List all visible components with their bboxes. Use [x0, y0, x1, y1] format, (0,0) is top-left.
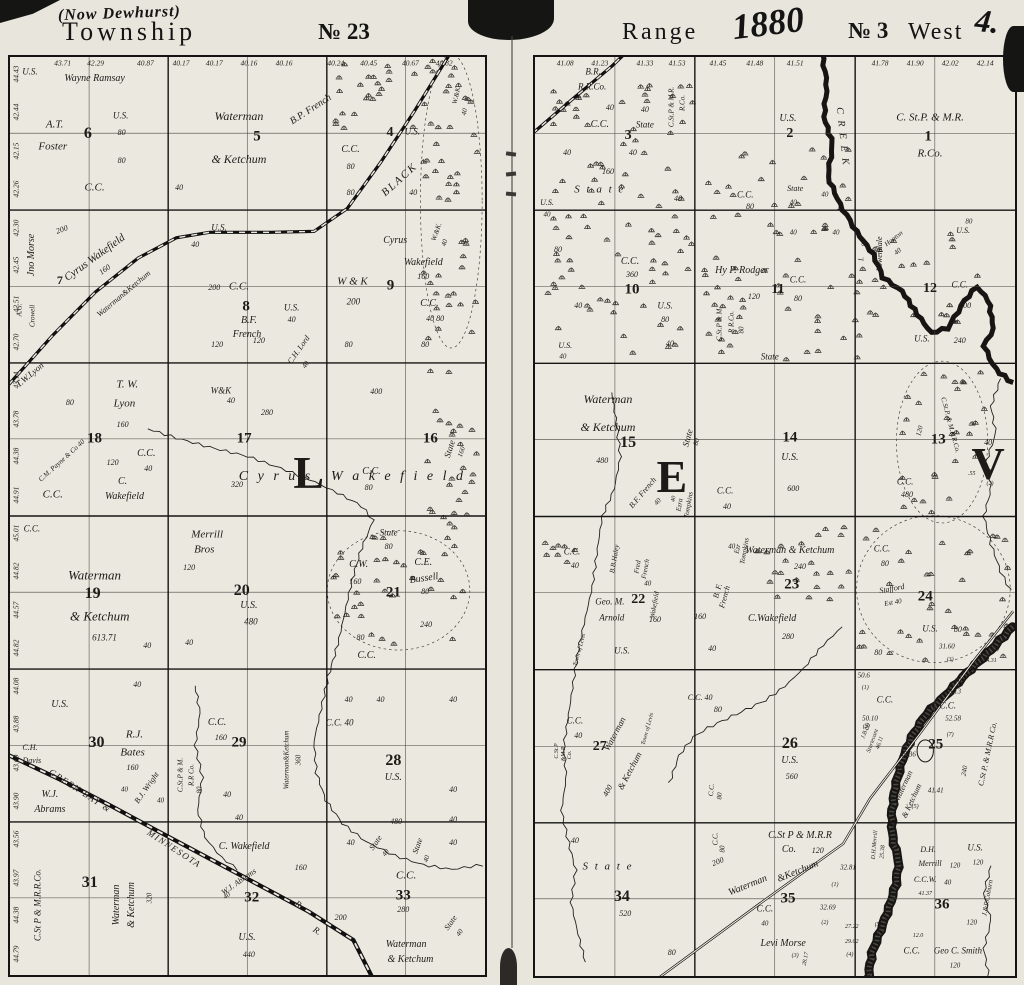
- map-label: 120: [748, 293, 760, 301]
- map-label: U.S.: [922, 624, 938, 633]
- map-label: Foster: [38, 141, 67, 152]
- map-label: C.C.: [229, 282, 249, 293]
- edge-acreage-left: 43.69: [12, 755, 20, 772]
- map-label: Hy P. Rodger: [715, 266, 768, 276]
- map-label: C.St P. & M.R.R Co.: [977, 721, 998, 787]
- map-label: B.F.: [241, 316, 257, 326]
- map-label: Town of Levis: [641, 712, 655, 746]
- map-label: C.C.: [877, 696, 894, 705]
- map-label: Hooton: [884, 230, 905, 248]
- map-label: 440: [243, 951, 255, 959]
- map-label: 50.10: [862, 715, 878, 722]
- map-label: & Ketchum: [388, 955, 434, 965]
- map-label: 120: [950, 962, 961, 969]
- edge-acreage-left: 42.70: [12, 334, 20, 351]
- map-label: 14.31: [983, 658, 997, 664]
- map-label: C.Wakefield: [748, 614, 796, 624]
- map-label: & Ketchum: [616, 751, 643, 792]
- map-label: 160: [215, 734, 227, 742]
- map-label: U.S.: [51, 700, 68, 710]
- gutter-mark: [506, 192, 516, 197]
- map-label: &M.R: [561, 746, 567, 761]
- map-label: Town of Levis: [573, 633, 587, 667]
- edge-acreage-top: 42.29: [87, 60, 104, 68]
- handwritten-year: 1880: [730, 0, 807, 48]
- map-label: 40: [235, 814, 243, 822]
- edge-acreage-top: 41.45: [709, 60, 726, 68]
- edge-acreage-top: 41.78: [872, 60, 889, 68]
- map-label: A.T.: [46, 119, 64, 130]
- map-label: 200: [711, 856, 725, 868]
- map-label: J.&P.Coburn: [981, 879, 994, 916]
- map-label: 29.02: [845, 939, 859, 945]
- map-label: 80: [66, 399, 74, 407]
- map-label: 25: [928, 738, 943, 753]
- map-label: 40: [345, 696, 353, 704]
- map-label: 10: [624, 283, 639, 298]
- map-label: U.S.: [967, 844, 983, 853]
- map-label: 40: [143, 642, 151, 650]
- map-label: (1): [832, 882, 839, 888]
- map-label: C.St.P: [554, 743, 560, 758]
- map-label: 5: [253, 129, 261, 144]
- map-label: U.S.: [238, 933, 255, 943]
- map-label: 12: [923, 282, 937, 296]
- map-label: C.C. 40: [326, 719, 354, 728]
- map-label: 80: [365, 484, 373, 492]
- map-label: C.E.: [414, 558, 432, 568]
- map-label: 80: [794, 295, 802, 303]
- map-label: 32.69: [820, 904, 836, 911]
- edge-acreage-top: 41.48: [746, 60, 763, 68]
- map-label: 32.81: [840, 865, 856, 872]
- map-label: C.C.: [564, 548, 581, 557]
- map-label: 40: [227, 397, 235, 405]
- township-label: Township: [62, 17, 196, 47]
- map-label: Cyrus: [383, 236, 407, 246]
- map-label: 40: [644, 580, 651, 587]
- map-label: Waterman: [214, 110, 263, 122]
- map-label: 120: [183, 564, 195, 572]
- map-label: 80: [357, 634, 365, 642]
- map-label: 120: [253, 337, 265, 345]
- map-label: 36: [935, 898, 950, 913]
- edge-acreage-top: 40.16: [240, 60, 257, 68]
- edge-acreage-top: 41.53: [669, 60, 686, 68]
- map-label: 31.60: [939, 643, 955, 650]
- edge-acreage-top: 42.14: [977, 60, 994, 68]
- map-label: &Ketchum: [776, 859, 820, 885]
- map-label: 40: [723, 503, 731, 511]
- map-label: 120: [812, 847, 824, 855]
- edge-acreage-top: 41.08: [557, 60, 574, 68]
- map-label: (5): [912, 804, 919, 810]
- map-label: C.C.: [341, 145, 359, 155]
- binding-blob-top: [468, 0, 554, 40]
- map-label: 40: [449, 839, 457, 847]
- map-label: 80: [385, 543, 393, 551]
- map-label: State: [412, 837, 425, 855]
- map-label: W.&K.: [452, 85, 463, 105]
- map-label: 20: [234, 583, 250, 599]
- map-label: C. St.P. & M.R.: [896, 112, 964, 123]
- plat-page-left: U.S.Wayne RamsayA.T.Foster6U.S.8080C.C.4…: [8, 55, 487, 977]
- edge-acreage-left: 43.97: [12, 869, 20, 886]
- map-label: 40: [574, 732, 582, 740]
- map-label: 80: [720, 846, 727, 853]
- map-label: 40: [571, 837, 579, 845]
- map-label: L: [293, 450, 324, 496]
- township-number: № 23: [318, 19, 370, 45]
- edge-acreage-top: 43.71: [54, 60, 71, 68]
- map-label: 80: [345, 341, 353, 349]
- edge-acreage-top: 40.87: [137, 60, 154, 68]
- map-label: Bates: [120, 747, 144, 758]
- map-label: 40: [461, 108, 469, 116]
- map-label: (4): [846, 952, 853, 958]
- map-label: 40: [821, 191, 828, 198]
- map-label: 3: [625, 129, 632, 143]
- map-label: 15: [620, 435, 636, 451]
- map-label: 14: [782, 431, 797, 446]
- map-label: Wakefield: [105, 492, 144, 502]
- map-label: C.C.: [567, 717, 584, 726]
- edge-acreage-left: 43.88: [12, 716, 20, 733]
- map-label: 40: [449, 816, 457, 824]
- map-label: Waterman: [68, 568, 121, 581]
- map-label: T. W.: [116, 379, 138, 390]
- map-label: Waterman: [727, 874, 769, 899]
- map-label: 40: [790, 200, 797, 207]
- map-label: 2: [786, 127, 793, 141]
- edge-acreage-left: 45.01: [12, 525, 20, 542]
- map-label: C.C. 40: [688, 694, 713, 702]
- map-label: 26: [782, 736, 798, 752]
- edge-acreage-top: 41.33: [636, 60, 653, 68]
- map-label: 40: [559, 353, 566, 360]
- map-label: 80: [746, 203, 754, 211]
- map-label: & Ketchum: [580, 421, 635, 433]
- map-label: 80: [693, 438, 702, 447]
- map-label: U.S.: [405, 128, 421, 137]
- map-label: B.R.: [585, 67, 601, 76]
- west-label: West: [908, 19, 963, 46]
- map-label: Levi Morse: [761, 939, 806, 949]
- map-label: C.St.P & M.: [716, 307, 723, 341]
- map-label: 40: [175, 184, 183, 192]
- map-label: Lyon: [114, 399, 136, 410]
- edge-acreage-top: 41.90: [907, 60, 924, 68]
- edge-acreage-top: 40.17: [206, 60, 223, 68]
- edge-acreage-left: 44.82: [12, 640, 20, 657]
- map-label: C.C.: [717, 486, 734, 495]
- edge-acreage-top: 40.45: [360, 60, 377, 68]
- map-label: 120: [950, 862, 961, 869]
- map-label: Waterman: [584, 393, 633, 405]
- edge-acreage-left: 42.30: [12, 219, 20, 236]
- map-label: 40: [185, 639, 193, 647]
- map-label: U.S.: [914, 335, 930, 344]
- edge-acreage-left: 44.38: [12, 907, 20, 924]
- map-label: Waterman: [386, 940, 427, 950]
- map-label: & Ketchum: [70, 610, 130, 623]
- map-label: C.C.: [396, 870, 416, 881]
- edge-acreage-left: 44.79: [12, 945, 20, 962]
- map-label: 80: [347, 163, 355, 171]
- map-label: 41.37: [918, 891, 932, 897]
- map-label: S t a t e: [582, 861, 633, 872]
- map-label: 280: [397, 906, 409, 914]
- map-label: 9: [387, 278, 395, 293]
- map-label: 40: [347, 839, 355, 847]
- edge-acreage-left: 42.45: [12, 257, 20, 274]
- map-label: U.S.: [113, 111, 129, 120]
- map-label: 160: [295, 864, 307, 872]
- map-label: U.S.: [657, 302, 673, 311]
- map-label: (1): [862, 685, 869, 691]
- map-label: Wakefield: [404, 258, 443, 268]
- map-label: 21: [386, 586, 401, 601]
- map-label: 40: [674, 195, 682, 203]
- map-label: C.St P & M.R.R: [768, 831, 832, 841]
- map-label: 40: [449, 786, 457, 794]
- map-label: 32: [244, 890, 259, 905]
- map-label: 160: [97, 263, 111, 277]
- map-label: 80: [118, 129, 126, 137]
- map-label: Waterman & Ketchum: [745, 546, 834, 556]
- map-label: 480: [390, 818, 402, 826]
- map-label: 13: [931, 433, 946, 448]
- map-label: 40: [574, 302, 582, 310]
- gutter-mark: [506, 151, 516, 156]
- map-label: C.C.: [84, 183, 104, 194]
- map-label: C.C.: [137, 449, 155, 459]
- map-label: C.H. Lord: [286, 334, 311, 365]
- map-label: Tompkins: [683, 491, 695, 518]
- map-label: C.C.: [24, 524, 41, 533]
- map-label: 80: [347, 189, 355, 197]
- map-label: 17: [237, 431, 252, 446]
- map-label: (5): [875, 922, 882, 928]
- map-label: 120: [915, 425, 924, 437]
- map-label: 33: [396, 889, 411, 904]
- plat-page-right: B.R.R.R.Co.C.C.State340404040160S t a t …: [533, 55, 1017, 978]
- map-label: D.H.: [920, 846, 936, 854]
- map-label: 40: [629, 149, 637, 157]
- map-label: State: [443, 439, 457, 459]
- edge-acreage-left: 43.90: [12, 792, 20, 809]
- map-label: 28: [385, 753, 401, 769]
- edge-acreage-left: 42.44: [12, 104, 20, 121]
- map-label: 200: [959, 302, 971, 310]
- map-label: E: [656, 454, 687, 500]
- map-label: 40: [563, 149, 571, 157]
- edge-acreage-left: 42.26: [12, 181, 20, 198]
- map-label: 120: [973, 859, 984, 866]
- map-label: 24: [918, 590, 933, 605]
- map-label: 40: [191, 241, 199, 249]
- page-edge-blob: [1003, 26, 1024, 92]
- map-label: 80: [421, 588, 429, 596]
- map-label: 120: [967, 919, 978, 926]
- map-label: 40: [455, 928, 465, 938]
- map-label: (2): [821, 920, 828, 926]
- map-label: C R E E K: [834, 107, 850, 167]
- map-label: 23: [784, 577, 799, 592]
- map-label: 360: [295, 755, 302, 766]
- edge-acreage-top: 40.17: [173, 60, 190, 68]
- map-label: Jno Morse: [27, 234, 37, 277]
- map-label: 40: [761, 920, 768, 927]
- edge-acreage-left: 42.51: [12, 296, 20, 313]
- map-label: 40: [157, 797, 164, 804]
- handwritten-west-number: 4.: [973, 2, 1001, 41]
- map-label: 40: [288, 316, 296, 324]
- edge-acreage-top: 40.24: [327, 60, 344, 68]
- map-label: & Ketchum: [211, 153, 266, 165]
- map-label: B.F. French: [628, 476, 658, 510]
- map-label: S t a t e: [574, 185, 625, 196]
- map-label: 40: [571, 562, 579, 570]
- map-label: 40: [377, 696, 385, 704]
- map-label: Arnold: [599, 613, 624, 622]
- map-label: R R.Co.: [728, 311, 735, 333]
- map-label: 160: [127, 764, 139, 772]
- edge-acreage-left: 44.38: [12, 448, 20, 465]
- map-label: Co.: [782, 845, 796, 855]
- map-label: W.J.: [41, 790, 58, 800]
- map-label: Est 40: [884, 598, 903, 608]
- map-label: 80: [197, 786, 204, 793]
- map-label: Waterman&Ketchum: [96, 269, 153, 318]
- map-label: 400: [602, 784, 615, 798]
- map-label: 320: [146, 893, 153, 904]
- map-label: Geo C. Smith: [934, 947, 982, 956]
- edge-acreage-top: 40.16: [276, 60, 293, 68]
- edge-acreage-left: 44.43: [12, 66, 20, 83]
- map-label: C.C.: [362, 467, 380, 477]
- edge-acreage-left: 44.82: [12, 563, 20, 580]
- map-label: 240: [954, 337, 966, 345]
- edge-acreage-left: 44.57: [12, 601, 20, 618]
- map-label: 8: [242, 299, 250, 314]
- map-label: 400: [370, 388, 382, 396]
- map-label: C.C.: [757, 904, 774, 913]
- map-label: 320: [231, 481, 243, 489]
- map-label: W a k e f i e l d: [331, 470, 466, 484]
- map-label: 40: [423, 855, 432, 864]
- edge-acreage-top: 40.82: [436, 60, 453, 68]
- map-label: State: [380, 529, 398, 538]
- map-label: 160: [602, 168, 614, 176]
- map-label: 40: [893, 247, 903, 257]
- map-label: Bros: [194, 544, 214, 555]
- map-label: 40: [606, 104, 614, 112]
- range-number: № 3: [848, 18, 888, 44]
- map-label: W & K: [337, 276, 368, 287]
- map-label: 480: [901, 491, 913, 499]
- map-label: (3): [947, 657, 954, 663]
- map-label: 4: [387, 126, 394, 140]
- map-label: 30: [88, 735, 104, 751]
- map-label: 34: [614, 889, 630, 905]
- map-label: R.J.: [126, 730, 143, 741]
- edge-acreage-left: 43.56: [12, 831, 20, 848]
- map-label: U.S.: [284, 303, 300, 312]
- map-label: 40: [544, 212, 551, 219]
- map-label: U.S.: [781, 756, 798, 766]
- edge-acreage-left: 43.78: [12, 410, 20, 427]
- map-label: 200: [335, 914, 347, 922]
- map-label: 120: [211, 341, 223, 349]
- map-label: (7): [947, 732, 954, 738]
- map-label: 80: [714, 706, 722, 714]
- map-label: 40: [666, 340, 674, 348]
- map-label: 12.0: [913, 933, 924, 939]
- map-labels-right: B.R.R.R.Co.C.C.State340404040160S t a t …: [535, 57, 1015, 976]
- map-label: 18: [87, 431, 102, 446]
- map-label: R.Co.: [918, 149, 943, 160]
- map-label: 200: [347, 298, 361, 307]
- map-label: C. Wakefield: [219, 842, 270, 852]
- map-label: U.S.: [22, 67, 38, 76]
- map-label: 6: [84, 126, 92, 142]
- edge-acreage-left: 44.91: [12, 486, 20, 503]
- map-label: 40: [409, 189, 417, 197]
- map-label: Crowell: [29, 305, 36, 327]
- map-label: (8): [954, 678, 961, 684]
- map-label: 22: [631, 593, 645, 607]
- map-label: 80: [554, 246, 562, 254]
- map-label: U.S.: [956, 227, 970, 235]
- plat-map-scan: (Now Dewhurst) Township № 23 Range 1880 …: [0, 0, 1024, 985]
- map-label: State: [761, 352, 779, 361]
- map-label: U.S.: [558, 342, 572, 350]
- map-label: C.C.: [208, 718, 226, 728]
- edge-acreage-left: 43.14: [12, 372, 20, 389]
- map-label: & Ketchum: [127, 882, 137, 928]
- map-label: 40 80: [426, 315, 444, 323]
- map-label: 19: [85, 586, 101, 602]
- map-label: (1): [992, 646, 999, 652]
- map-label: 40: [144, 465, 152, 473]
- map-label: 40: [708, 645, 716, 653]
- map-label: V: [971, 441, 1004, 487]
- map-label: 80: [716, 792, 724, 800]
- map-label: Co.: [567, 751, 573, 760]
- map-label: C.C.W.: [914, 876, 937, 884]
- map-label: D.H.Merrill: [871, 830, 880, 859]
- map-label: 29: [231, 735, 246, 750]
- map-label: 28.17: [802, 951, 811, 965]
- map-label: 80: [874, 649, 882, 657]
- map-label: 200: [208, 284, 220, 292]
- map-label: 7: [57, 274, 63, 286]
- map-label: 600: [787, 485, 799, 493]
- map-label: Bussell: [409, 572, 439, 586]
- map-label: 280: [261, 409, 273, 417]
- map-label: (3): [792, 953, 799, 959]
- map-label: Waterman: [603, 716, 628, 753]
- map-label: U.S.: [540, 199, 554, 207]
- map-label: Wayne Ramsay: [64, 74, 124, 84]
- map-label: 200: [55, 224, 69, 236]
- map-label: 160: [694, 613, 706, 621]
- map-label: C.W.: [349, 560, 368, 570]
- map-label: 40: [302, 361, 312, 371]
- map-label: 1: [924, 129, 932, 144]
- map-label: 41.41: [928, 788, 944, 795]
